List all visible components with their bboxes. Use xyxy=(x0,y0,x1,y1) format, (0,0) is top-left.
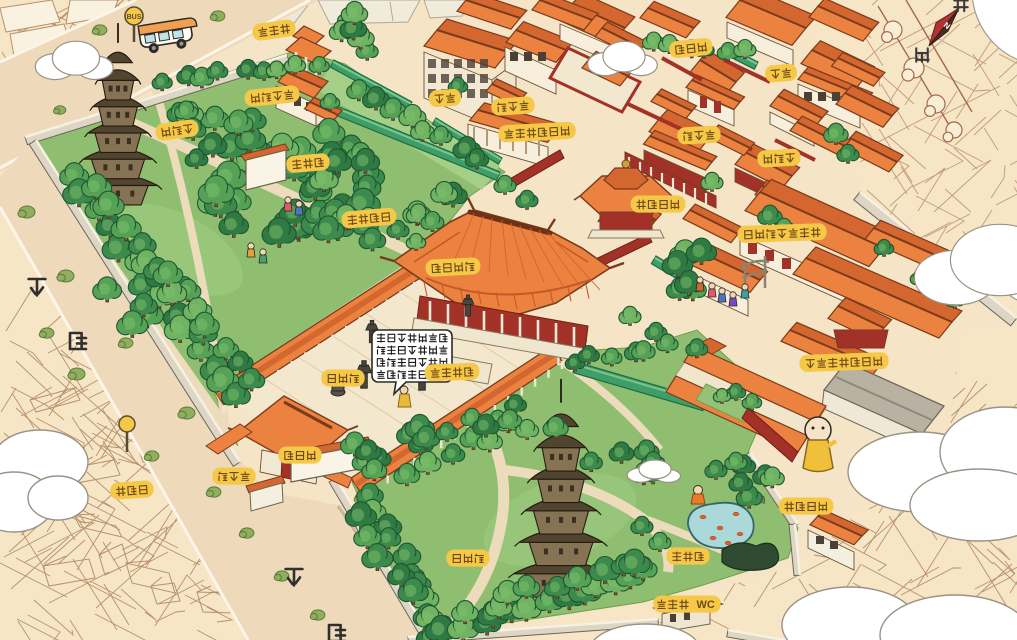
svg-text:BUS: BUS xyxy=(127,14,142,21)
svg-text:WC: WC xyxy=(697,599,715,611)
